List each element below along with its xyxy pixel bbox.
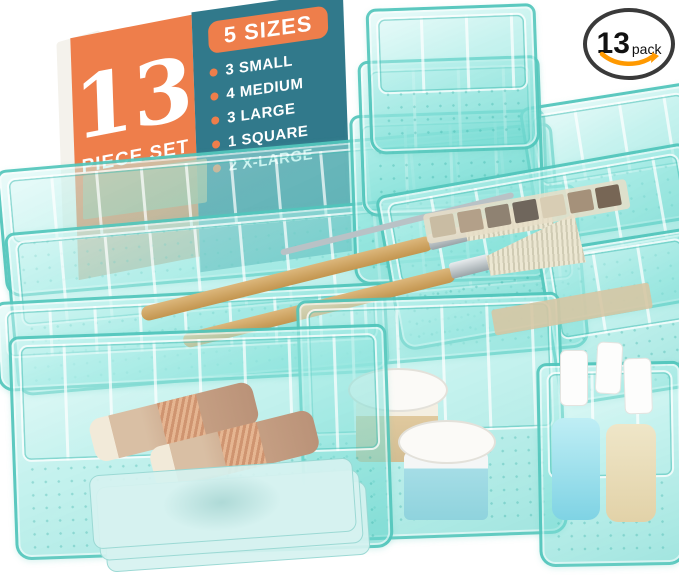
polish-cap (595, 341, 624, 394)
bullet-dot (211, 115, 219, 124)
bullet-dot (210, 91, 218, 100)
palette-swatch (484, 203, 511, 228)
face-mask-sheets (89, 457, 372, 584)
polish-cap (623, 358, 653, 415)
cream-jar-lid (398, 420, 496, 464)
small-bin-1 (366, 3, 541, 155)
pack-badge: 13 pack (583, 8, 675, 80)
size-label: 3 SMALL (225, 52, 293, 78)
palette-swatch (567, 189, 594, 214)
polish-bottle (552, 418, 600, 520)
smile-arrow-icon (599, 51, 659, 69)
palette-swatch (429, 213, 456, 238)
sizes-title: 5 SIZES (208, 5, 329, 54)
size-label: 3 LARGE (227, 100, 296, 127)
palette-swatch (540, 194, 567, 219)
polish-bottle (606, 424, 656, 522)
size-label: 4 MEDIUM (226, 75, 304, 103)
palette-swatch (512, 199, 539, 224)
polish-cap (560, 350, 588, 406)
palette-swatch (457, 208, 484, 233)
bin-rim (376, 12, 529, 94)
bullet-dot (209, 67, 217, 76)
bullet-dot (212, 139, 220, 148)
bin-floor (381, 83, 527, 144)
mask-face-illustration (160, 469, 284, 535)
palette-swatch (595, 184, 622, 209)
